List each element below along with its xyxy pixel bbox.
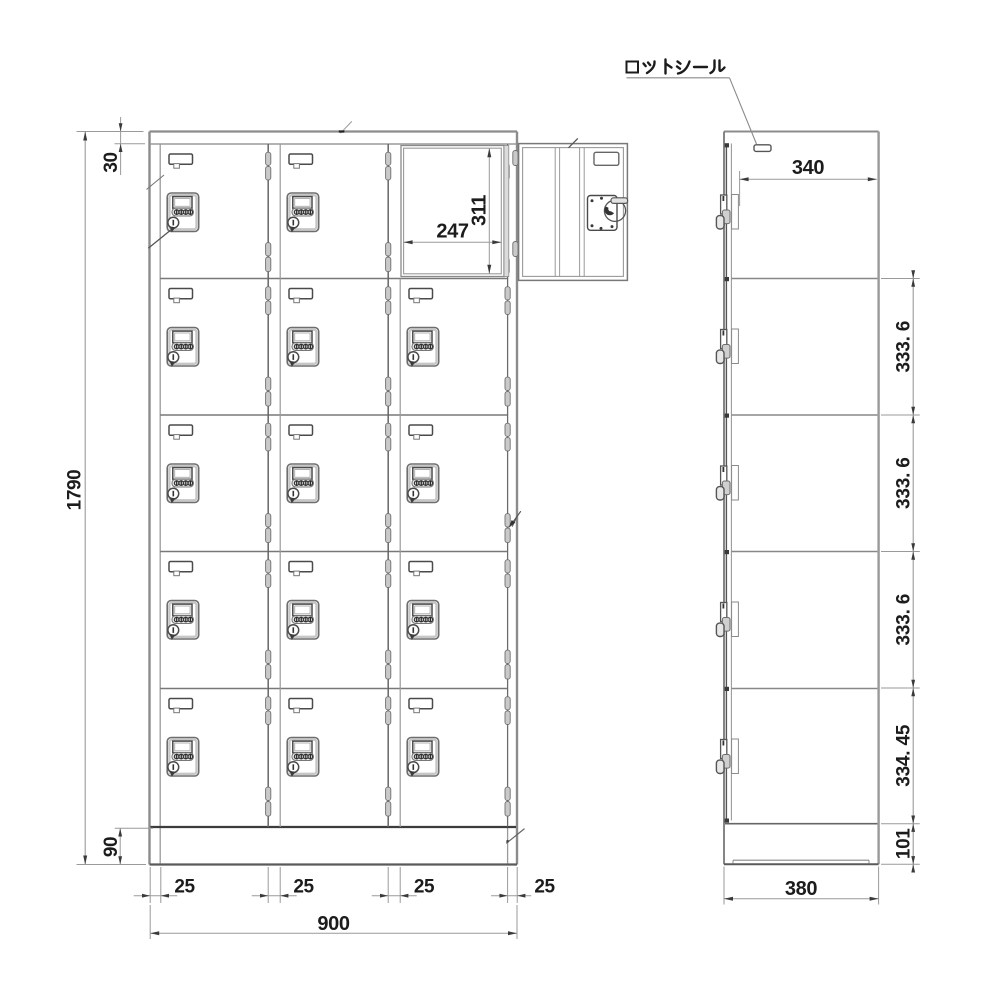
svg-text:333. 6: 333. 6 [894,457,915,509]
svg-text:380: 380 [785,878,817,900]
svg-text:25: 25 [534,877,555,898]
svg-text:1790: 1790 [65,470,86,511]
svg-text:25: 25 [293,877,314,898]
svg-text:333. 6: 333. 6 [894,594,915,646]
svg-text:25: 25 [174,877,195,898]
svg-text:340: 340 [792,157,824,179]
svg-text:900: 900 [317,913,349,935]
svg-text:25: 25 [414,877,435,898]
svg-text:101: 101 [894,828,915,859]
svg-text:90: 90 [101,837,122,857]
svg-text:247: 247 [436,221,468,243]
svg-text:333. 6: 333. 6 [894,321,915,373]
svg-text:311: 311 [469,195,491,226]
svg-text:30: 30 [101,152,122,172]
svg-text:334. 45: 334. 45 [894,724,915,787]
